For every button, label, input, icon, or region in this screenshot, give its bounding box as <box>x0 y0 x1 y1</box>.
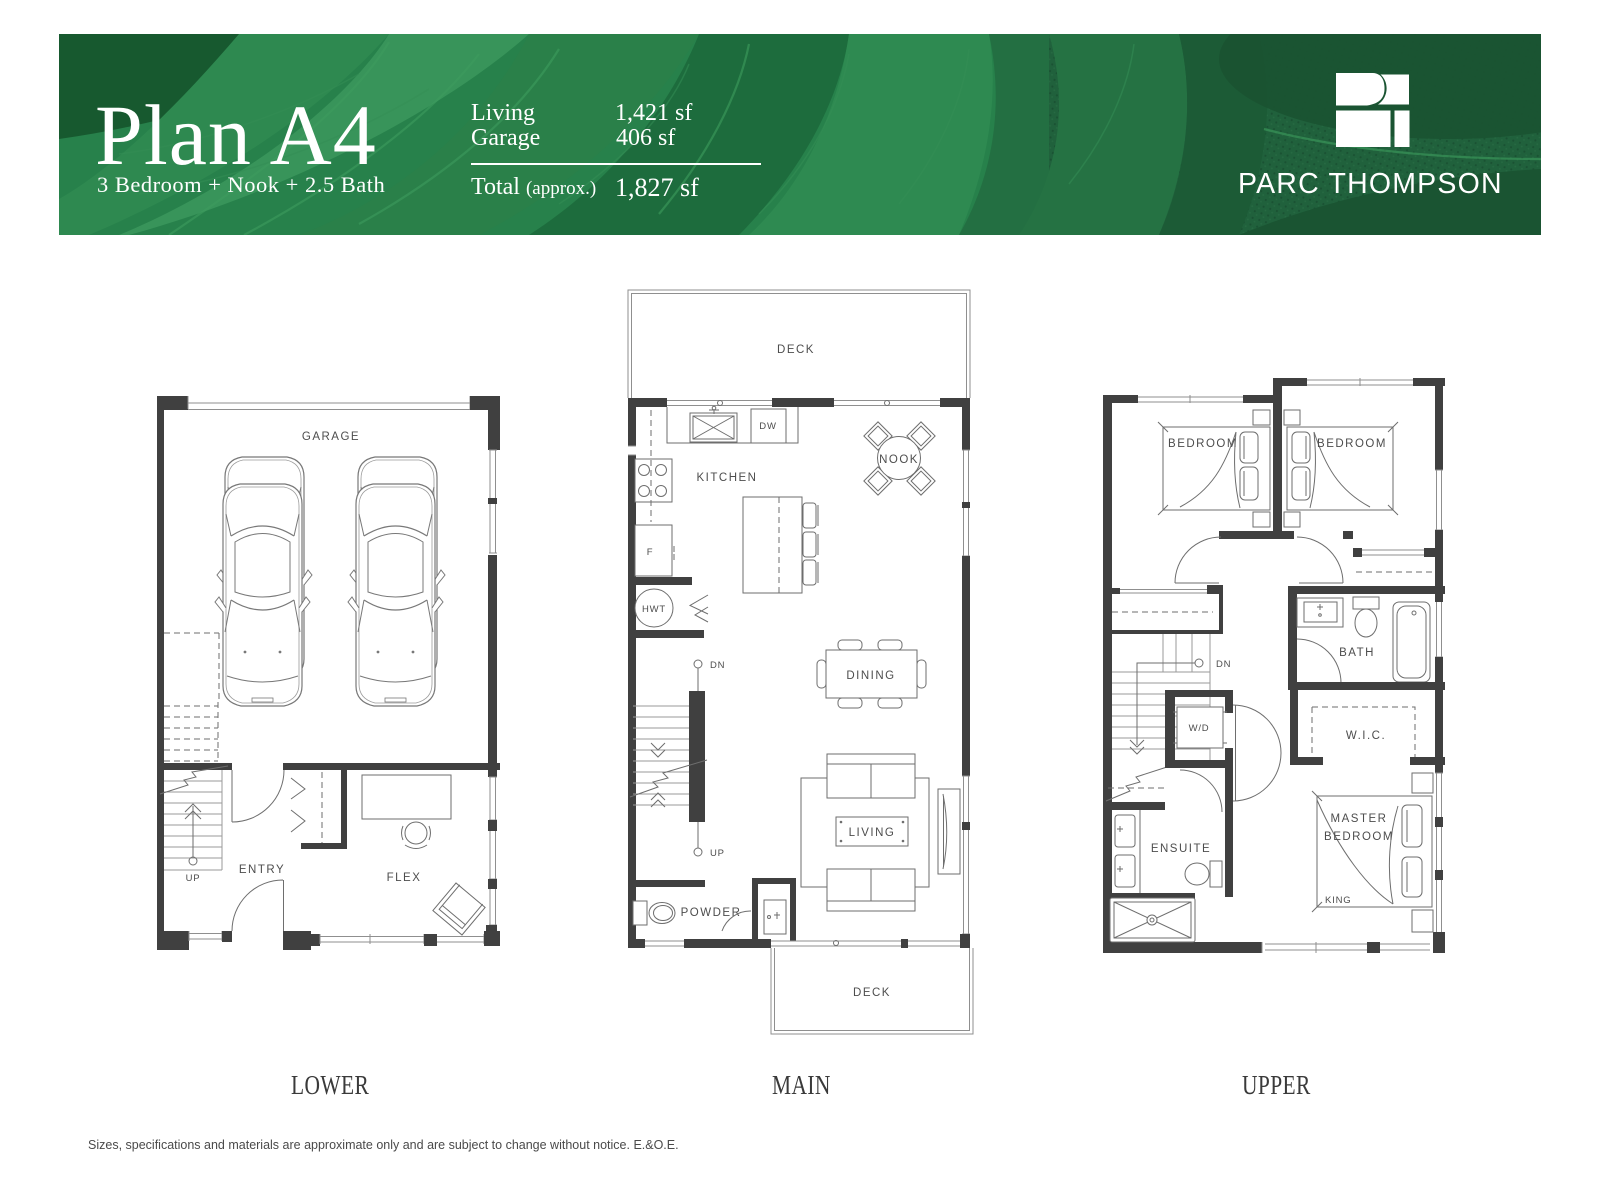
svg-text:KING: KING <box>1325 895 1351 906</box>
svg-text:BEDROOM: BEDROOM <box>1317 438 1387 450</box>
svg-text:DN: DN <box>1216 659 1231 670</box>
svg-text:ENSUITE: ENSUITE <box>1151 843 1211 855</box>
svg-text:DECK: DECK <box>853 987 891 999</box>
svg-text:BEDROOM: BEDROOM <box>1324 831 1394 843</box>
svg-text:NOOK: NOOK <box>879 454 919 466</box>
svg-text:W/D: W/D <box>1189 723 1210 734</box>
svg-text:DW: DW <box>759 421 776 432</box>
svg-text:FLEX: FLEX <box>387 872 422 884</box>
svg-text:MASTER: MASTER <box>1331 813 1388 825</box>
svg-text:BATH: BATH <box>1339 647 1375 659</box>
svg-text:ENTRY: ENTRY <box>239 864 285 876</box>
svg-text:F: F <box>647 547 654 558</box>
svg-text:KITCHEN: KITCHEN <box>697 472 758 484</box>
svg-text:GARAGE: GARAGE <box>302 431 360 443</box>
svg-text:DN: DN <box>710 660 725 671</box>
svg-text:DECK: DECK <box>777 344 815 356</box>
svg-text:HWT: HWT <box>642 604 666 615</box>
svg-text:UP: UP <box>186 873 201 884</box>
svg-text:LIVING: LIVING <box>849 827 896 839</box>
svg-text:DINING: DINING <box>846 670 895 682</box>
svg-text:BEDROOM: BEDROOM <box>1168 438 1238 450</box>
svg-text:UP: UP <box>710 848 725 859</box>
svg-text:W.I.C.: W.I.C. <box>1346 730 1386 742</box>
